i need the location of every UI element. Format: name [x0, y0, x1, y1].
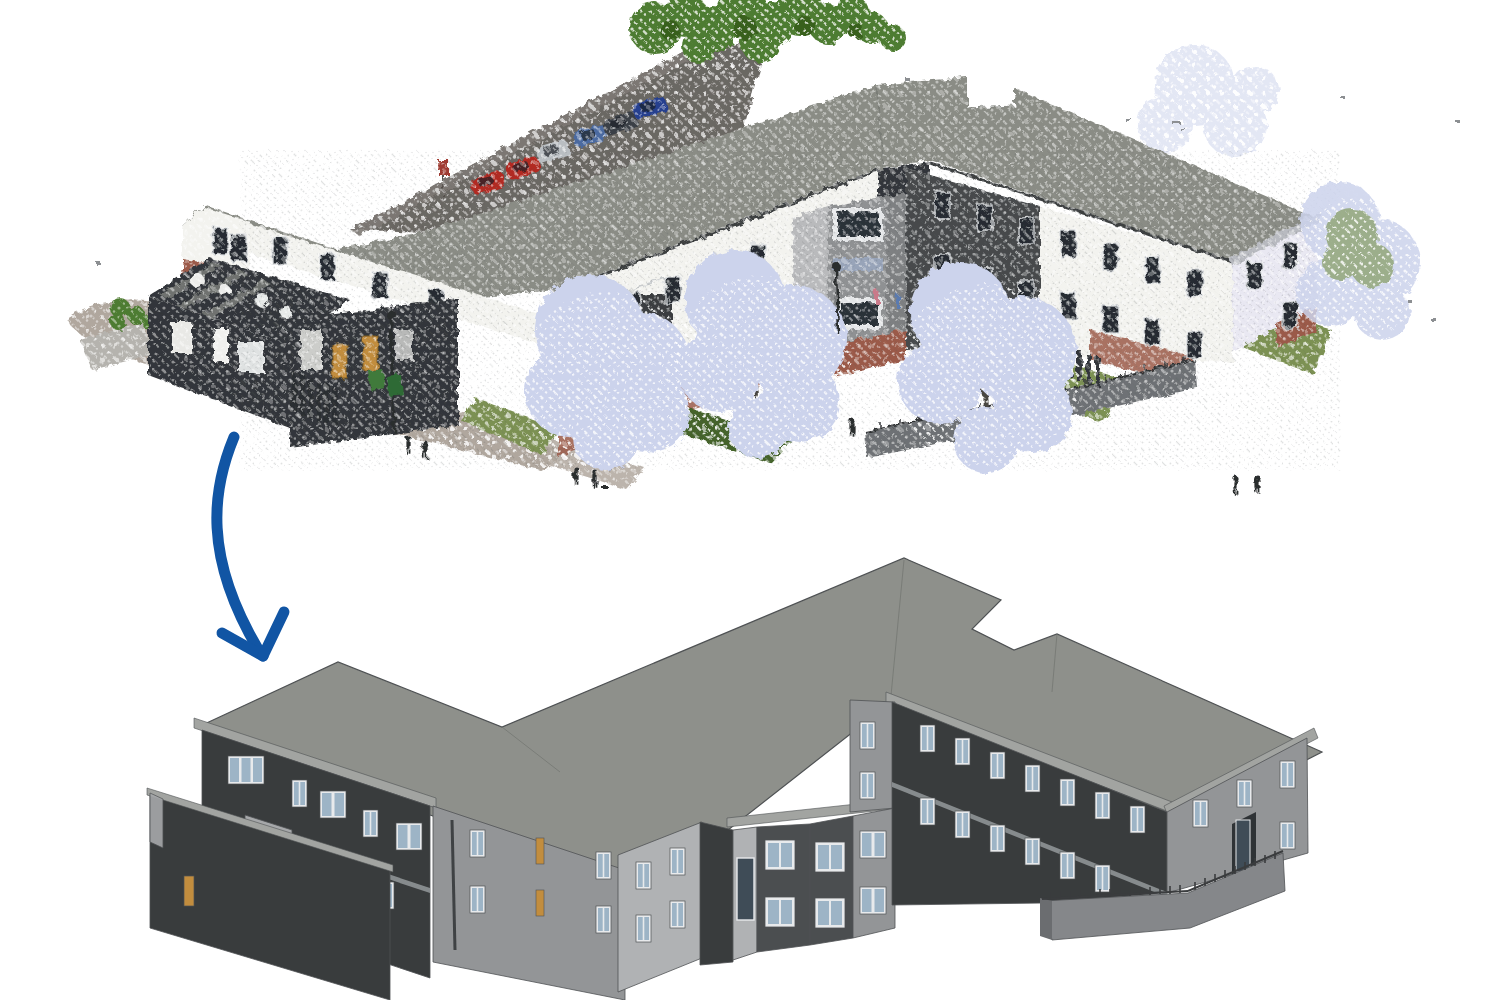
scan-to-bim-figure	[0, 0, 1500, 1000]
figure-canvas	[0, 0, 1500, 1000]
bim-model	[147, 558, 1322, 1000]
point-cloud-scan	[60, 0, 1460, 520]
courtyard-door	[184, 876, 194, 906]
entrance-door	[737, 858, 754, 920]
